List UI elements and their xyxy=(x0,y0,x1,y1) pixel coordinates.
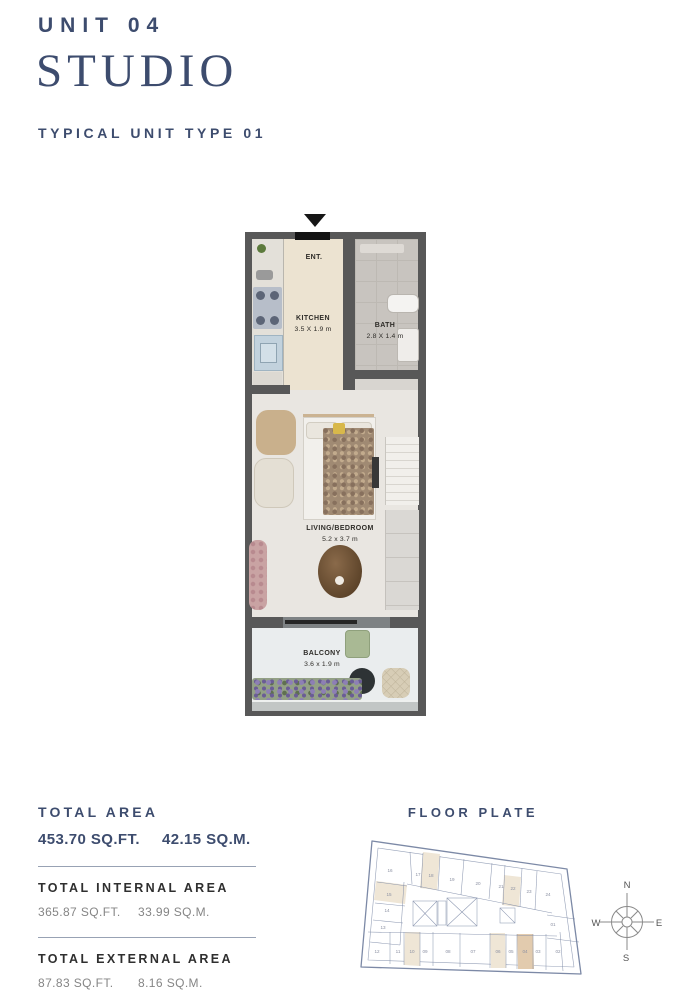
wardrobe xyxy=(385,437,419,505)
external-area-values: 87.83 SQ.FT. 8.16 SQ.M. xyxy=(38,976,268,991)
floor-plate-unit-label: 06 xyxy=(495,949,501,954)
compass-east-label: E xyxy=(656,918,662,929)
kitchen-appliance xyxy=(256,270,273,280)
floor-plate-unit-label: 14 xyxy=(384,908,390,913)
kitchen-label: KITCHEN 3.5 X 1.9 m xyxy=(295,315,332,333)
floor-plate-unit-label: 18 xyxy=(428,873,434,878)
bed-blanket xyxy=(323,428,374,515)
total-area-label: TOTAL AREA xyxy=(38,804,268,820)
floor-plate-unit-label: 24 xyxy=(545,892,551,897)
throw-pillow xyxy=(333,423,345,434)
floor-plate-unit-label: 11 xyxy=(396,949,401,954)
bath-vanity-shelf xyxy=(360,244,404,253)
total-area-values: 453.70 SQ.FT. 42.15 SQ.M. xyxy=(38,831,268,849)
floor-plan: ENT. KITCHEN 3.5 X 1.9 m BATH 2.8 X 1.4 … xyxy=(245,232,426,716)
floor-plate-unit-label: 02 xyxy=(555,949,561,954)
entrance-label: ENT. xyxy=(306,254,323,262)
entrance-door xyxy=(295,232,330,240)
floor-plate-unit-label: 12 xyxy=(374,949,380,954)
internal-area-label: TOTAL INTERNAL AREA xyxy=(38,881,268,895)
floor-plate-unit-label: 04 xyxy=(522,949,528,954)
stove xyxy=(253,287,282,329)
unit-subtitle: TYPICAL UNIT TYPE 01 xyxy=(38,125,266,141)
area-summary: TOTAL AREA 453.70 SQ.FT. 42.15 SQ.M. TOT… xyxy=(38,804,268,991)
internal-area-sqm: 33.99 SQ.M. xyxy=(138,905,210,919)
floor-plate-unit-label: 17 xyxy=(415,872,421,877)
entrance-arrow-icon xyxy=(304,214,326,227)
bath-label: BATH 2.8 X 1.4 m xyxy=(367,322,404,340)
floor-plate-unit-label: 19 xyxy=(449,877,455,882)
floor-plate-highlight-22 xyxy=(502,875,521,907)
floor-plate-unit-label: 21 xyxy=(498,884,504,889)
coffee-table xyxy=(318,545,362,598)
compass-west-label: W xyxy=(592,918,601,929)
unit-number-title: UNIT 04 xyxy=(38,14,165,38)
balcony-railing xyxy=(252,700,418,711)
floor-plate-unit-label: 16 xyxy=(387,868,393,873)
floor-plate-unit-label: 10 xyxy=(409,949,415,954)
compass-north-label: N xyxy=(624,880,631,891)
floor-plate-unit-label: 05 xyxy=(508,949,514,954)
wall-stub xyxy=(245,385,290,394)
floor-plate-unit-label: 07 xyxy=(470,949,476,954)
living-bedroom-label: LIVING/BEDROOM 5.2 x 3.7 m xyxy=(306,525,373,543)
external-area-label: TOTAL EXTERNAL AREA xyxy=(38,952,268,966)
external-area-sqm: 8.16 SQ.M. xyxy=(138,976,203,990)
total-area-sqm: 42.15 SQ.M. xyxy=(162,831,251,848)
kitchen-sink xyxy=(254,335,283,371)
compass-icon: N E S W xyxy=(590,876,666,964)
internal-area-sqft: 365.87 SQ.FT. xyxy=(38,905,121,919)
floor-plate-unit-label: 13 xyxy=(380,925,386,930)
divider xyxy=(38,937,256,938)
floor-plate-unit-label: 01 xyxy=(550,922,556,927)
page: UNIT 04 STUDIO TYPICAL UNIT TYPE 01 xyxy=(0,0,682,1000)
balcony-label: BALCONY 3.6 x 1.9 m xyxy=(303,650,340,668)
balcony-wall-stub xyxy=(390,617,418,628)
bath-wall xyxy=(343,232,355,379)
bath-bottom-wall xyxy=(343,370,426,379)
balcony-wall-stub xyxy=(252,617,283,628)
floor-plate-unit-label: 23 xyxy=(526,889,532,894)
balcony-wicker-chair xyxy=(382,668,410,698)
tv-unit xyxy=(372,457,379,488)
floor-plate-unit-label: 09 xyxy=(422,949,428,954)
floor-plate-unit-label: 08 xyxy=(445,949,451,954)
divider xyxy=(38,866,256,867)
bathtub xyxy=(387,294,419,313)
balcony-chair xyxy=(345,630,370,658)
floor-plate-title: FLOOR PLATE xyxy=(408,805,538,820)
floor-plate-unit-label: 03 xyxy=(535,949,541,954)
unit-type-title: STUDIO xyxy=(36,44,238,98)
internal-area-values: 365.87 SQ.FT. 33.99 SQ.M. xyxy=(38,905,268,920)
floor-plate-unit-label: 20 xyxy=(475,881,481,886)
armchair xyxy=(256,410,296,455)
kitchen-plant xyxy=(257,244,266,253)
sofa xyxy=(385,510,419,610)
external-area-sqft: 87.83 SQ.FT. xyxy=(38,976,114,990)
floor-plate-unit-label: 15 xyxy=(386,892,392,897)
armchair xyxy=(254,458,294,508)
sliding-door xyxy=(285,620,357,624)
plant xyxy=(249,540,267,610)
total-area-sqft: 453.70 SQ.FT. xyxy=(38,831,140,848)
compass-south-label: S xyxy=(623,953,629,964)
floor-plate-diagram: 1617181920212223241514130112111009080706… xyxy=(352,820,592,990)
floor-plate-unit-label: 22 xyxy=(510,886,516,891)
flower-planter xyxy=(252,678,362,700)
